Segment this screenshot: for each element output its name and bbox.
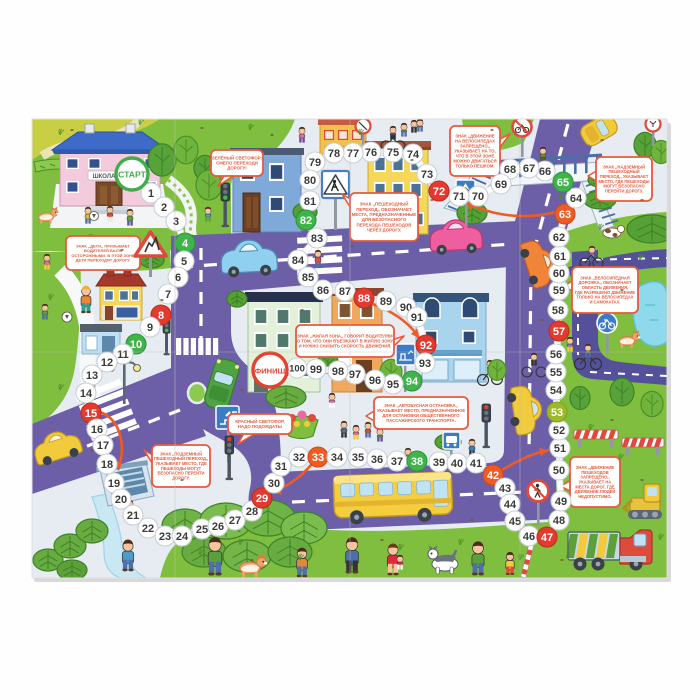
- svg-text:38: 38: [411, 456, 423, 468]
- svg-text:97: 97: [349, 369, 361, 381]
- svg-text:23: 23: [159, 531, 171, 543]
- svg-text:15: 15: [85, 408, 97, 420]
- svg-text:65: 65: [557, 177, 569, 189]
- svg-text:94: 94: [406, 376, 419, 388]
- svg-text:57: 57: [553, 326, 565, 338]
- svg-text:2: 2: [161, 202, 167, 214]
- svg-text:12: 12: [101, 357, 113, 369]
- svg-text:71: 71: [453, 191, 465, 203]
- svg-text:24: 24: [176, 531, 189, 543]
- svg-text:СТАРТ: СТАРТ: [118, 170, 147, 180]
- svg-text:42: 42: [487, 470, 499, 482]
- svg-text:55: 55: [550, 367, 562, 379]
- svg-text:64: 64: [570, 193, 583, 205]
- svg-text:52: 52: [553, 425, 565, 437]
- svg-text:5: 5: [181, 256, 187, 268]
- svg-text:80: 80: [304, 175, 316, 187]
- svg-text:53: 53: [551, 407, 563, 419]
- svg-text:1: 1: [148, 188, 154, 200]
- svg-text:27: 27: [229, 515, 241, 527]
- svg-text:78: 78: [328, 148, 340, 160]
- svg-text:54: 54: [550, 385, 563, 397]
- svg-text:6: 6: [175, 272, 181, 284]
- svg-text:14: 14: [80, 388, 93, 400]
- svg-text:86: 86: [317, 285, 329, 297]
- svg-text:81: 81: [304, 196, 316, 208]
- svg-text:88: 88: [358, 293, 370, 305]
- svg-text:4: 4: [182, 238, 189, 250]
- svg-text:45: 45: [509, 516, 521, 528]
- svg-text:32: 32: [293, 452, 305, 464]
- svg-text:79: 79: [309, 157, 321, 169]
- svg-text:74: 74: [407, 149, 420, 161]
- svg-text:58: 58: [552, 305, 564, 317]
- svg-text:72: 72: [433, 186, 445, 198]
- svg-text:25: 25: [196, 524, 208, 536]
- svg-text:49: 49: [555, 496, 567, 508]
- svg-text:13: 13: [86, 370, 98, 382]
- svg-text:84: 84: [292, 255, 305, 267]
- svg-text:47: 47: [541, 532, 553, 544]
- svg-text:18: 18: [101, 459, 113, 471]
- svg-text:ДОРОГУ!: ДОРОГУ!: [227, 166, 247, 171]
- svg-text:7: 7: [165, 289, 171, 301]
- svg-text:22: 22: [142, 523, 154, 535]
- svg-text:62: 62: [553, 232, 565, 244]
- svg-text:НЕДОПУСТИМО.: НЕДОПУСТИМО.: [578, 494, 611, 499]
- svg-text:8: 8: [158, 310, 164, 322]
- svg-text:35: 35: [352, 452, 364, 464]
- svg-text:75: 75: [387, 147, 399, 159]
- svg-text:67: 67: [523, 163, 535, 175]
- svg-text:34: 34: [331, 452, 344, 464]
- svg-text:70: 70: [472, 191, 484, 203]
- svg-text:20: 20: [115, 494, 127, 506]
- svg-text:92: 92: [420, 340, 432, 352]
- svg-text:87: 87: [339, 286, 351, 298]
- svg-text:95: 95: [387, 379, 399, 391]
- svg-text:37: 37: [391, 456, 403, 468]
- svg-text:31: 31: [275, 461, 287, 473]
- svg-text:56: 56: [550, 349, 562, 361]
- svg-text:НАДО ПОДОЖДАТЬ!: НАДО ПОДОЖДАТЬ!: [238, 424, 283, 429]
- svg-text:100: 100: [289, 363, 305, 374]
- svg-text:40: 40: [451, 458, 463, 470]
- svg-text:83: 83: [311, 233, 323, 245]
- svg-text:46: 46: [523, 531, 535, 543]
- svg-text:77: 77: [347, 148, 359, 160]
- svg-text:66: 66: [539, 166, 551, 178]
- svg-text:16: 16: [91, 424, 103, 436]
- svg-text:19: 19: [108, 478, 120, 490]
- svg-text:ТОЛЬКО ПЕШКОМ.: ТОЛЬКО ПЕШКОМ.: [455, 163, 494, 168]
- svg-text:44: 44: [504, 499, 517, 511]
- svg-text:9: 9: [147, 322, 153, 334]
- svg-text:96: 96: [369, 375, 381, 387]
- svg-text:59: 59: [553, 285, 565, 297]
- svg-text:30: 30: [268, 478, 280, 490]
- svg-text:21: 21: [127, 510, 139, 522]
- svg-text:69: 69: [495, 179, 507, 191]
- svg-text:26: 26: [212, 521, 224, 533]
- svg-text:36: 36: [371, 454, 383, 466]
- svg-text:98: 98: [332, 366, 344, 378]
- svg-text:82: 82: [300, 215, 312, 227]
- svg-text:85: 85: [302, 272, 314, 284]
- svg-text:91: 91: [411, 312, 423, 324]
- svg-text:ПЕРЕЙТИ ДОРОГУ.: ПЕРЕЙТИ ДОРОГУ.: [605, 189, 643, 194]
- svg-text:33: 33: [312, 452, 324, 464]
- svg-text:63: 63: [559, 209, 571, 221]
- svg-text:ЧЕРЕЗ ДОРОГУ.: ЧЕРЕЗ ДОРОГУ.: [367, 228, 402, 233]
- svg-text:93: 93: [419, 358, 431, 370]
- svg-text:ФИНИШ: ФИНИШ: [255, 367, 286, 376]
- svg-text:68: 68: [504, 164, 516, 176]
- svg-text:28: 28: [246, 506, 258, 518]
- svg-text:76: 76: [365, 147, 377, 159]
- svg-text:ШКОЛА: ШКОЛА: [93, 174, 116, 180]
- svg-text:ПАССАЖИРСКОГО ТРАНСПОРТА.: ПАССАЖИРСКОГО ТРАНСПОРТА.: [386, 418, 456, 423]
- svg-text:39: 39: [433, 457, 445, 469]
- svg-text:И САМОКАТАХ.: И САМОКАТАХ.: [590, 300, 621, 305]
- svg-text:3: 3: [173, 216, 179, 228]
- svg-text:11: 11: [117, 349, 129, 361]
- svg-text:50: 50: [553, 465, 565, 477]
- svg-text:89: 89: [380, 296, 392, 308]
- svg-text:48: 48: [553, 515, 565, 527]
- svg-text:17: 17: [97, 440, 109, 452]
- svg-text:43: 43: [499, 483, 511, 495]
- svg-text:73: 73: [421, 169, 433, 181]
- svg-text:51: 51: [554, 443, 566, 455]
- svg-text:60: 60: [553, 268, 565, 280]
- svg-text:ДЕТИ ПЕРЕХОДЯТ ДОРОГУ.: ДЕТИ ПЕРЕХОДЯТ ДОРОГУ.: [76, 258, 131, 263]
- svg-text:61: 61: [554, 251, 566, 263]
- svg-text:29: 29: [256, 493, 268, 505]
- svg-text:И НУЖНО СНИЗИТЬ СКОРОСТЬ ДВИЖЕ: И НУЖНО СНИЗИТЬ СКОРОСТЬ ДВИЖЕНИЯ.: [299, 343, 392, 348]
- svg-text:41: 41: [470, 458, 482, 470]
- svg-text:99: 99: [310, 364, 322, 376]
